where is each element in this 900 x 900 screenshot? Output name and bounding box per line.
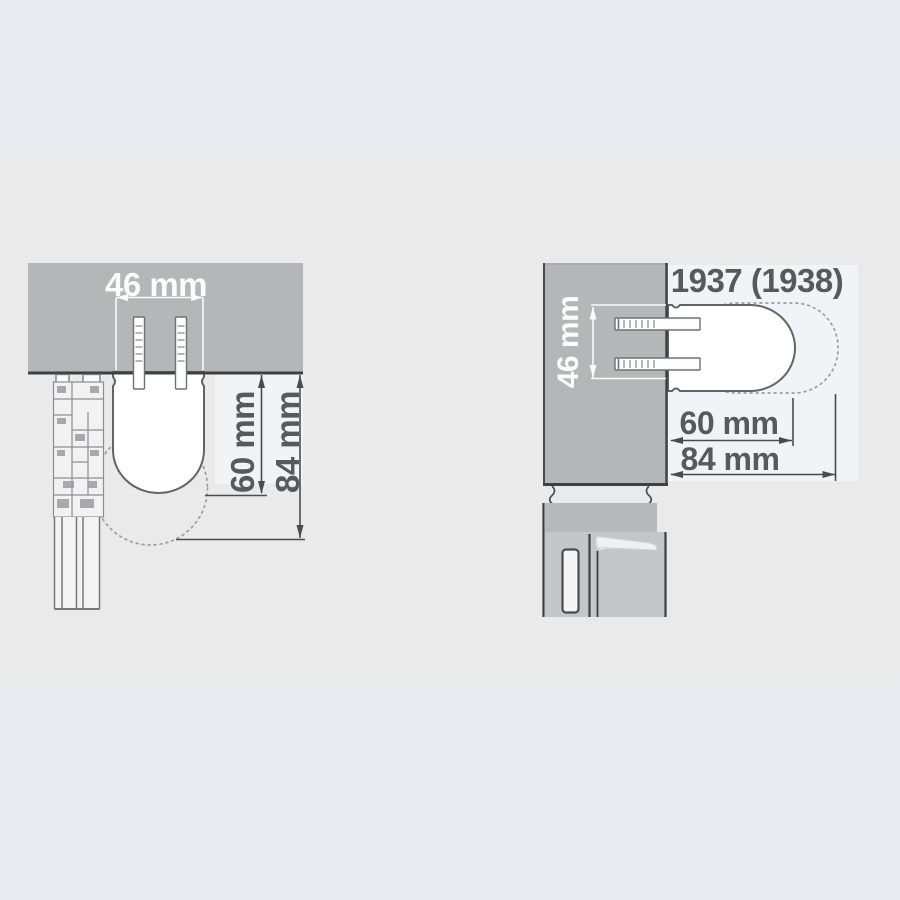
technical-drawing: 46 mm 60 mm 84 mm bbox=[0, 0, 900, 900]
left-section-view: 46 mm 60 mm 84 mm bbox=[28, 263, 306, 609]
right-swing-label: 84 mm bbox=[681, 441, 780, 477]
screw bbox=[615, 318, 700, 330]
left-spacing-label: 46 mm bbox=[105, 266, 207, 303]
left-handle-outline bbox=[113, 372, 204, 493]
break-marks bbox=[550, 486, 652, 505]
hinge-cover bbox=[563, 550, 579, 613]
model-number-label: 1937 (1938) bbox=[671, 262, 843, 299]
screw bbox=[615, 358, 700, 370]
sash-front-view bbox=[544, 503, 667, 617]
right-spacing-label: 46 mm bbox=[552, 296, 585, 389]
left-projection-label: 60 mm bbox=[224, 391, 261, 493]
right-front-view: 1937 (1938) 46 mm 60 mm 84 mm bbox=[543, 262, 843, 617]
right-projection-label: 60 mm bbox=[680, 405, 779, 441]
screw bbox=[134, 317, 145, 389]
left-swing-label: 84 mm bbox=[269, 391, 306, 493]
screw bbox=[176, 317, 187, 389]
frame-profile-section bbox=[54, 375, 104, 610]
